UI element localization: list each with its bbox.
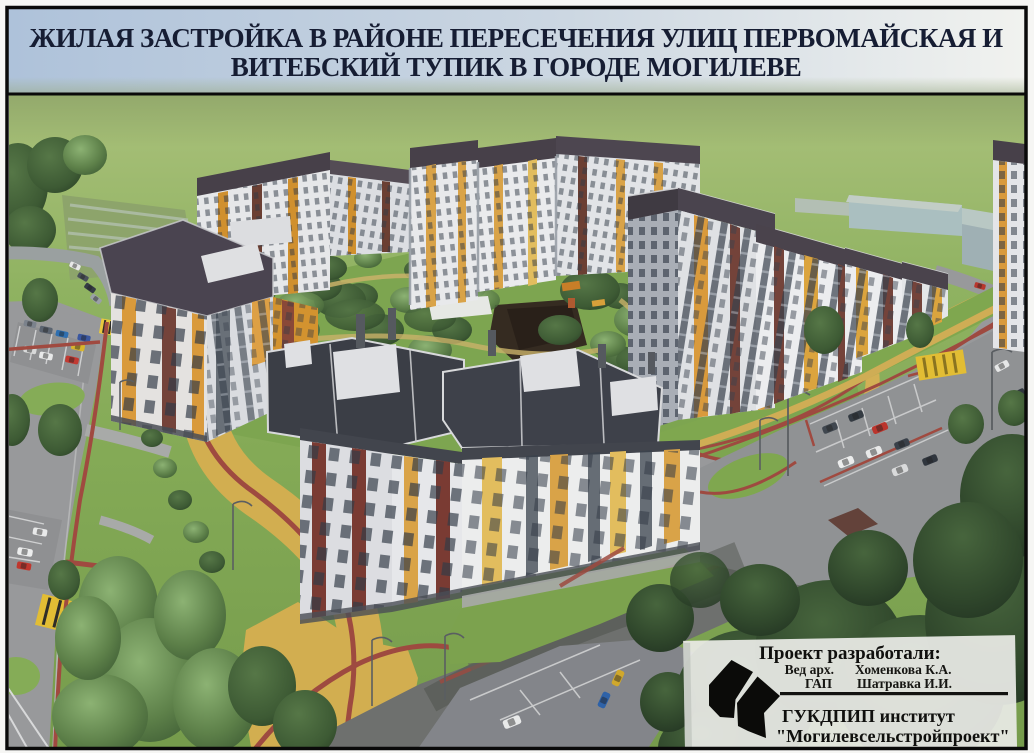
svg-text:ГУКДПИП институт: ГУКДПИП институт xyxy=(782,706,955,726)
svg-text:Проект разработали:: Проект разработали: xyxy=(759,643,941,664)
svg-text:ВИТЕБСКИЙ ТУПИК В ГОРОДЕ МОГИЛ: ВИТЕБСКИЙ ТУПИК В ГОРОДЕ МОГИЛЕВЕ xyxy=(231,52,802,82)
svg-text:Хоменкова К.А.: Хоменкова К.А. xyxy=(855,662,952,677)
svg-text:ГАП: ГАП xyxy=(805,676,833,691)
svg-text:"Могилевсельстройпроект": "Могилевсельстройпроект" xyxy=(776,726,1010,746)
svg-text:Шатравка И.И.: Шатравка И.И. xyxy=(857,676,952,691)
svg-text:Вед арх.: Вед арх. xyxy=(785,662,834,677)
svg-text:ЖИЛАЯ ЗАСТРОЙКА В РАЙОНЕ ПЕРЕС: ЖИЛАЯ ЗАСТРОЙКА В РАЙОНЕ ПЕРЕСЕЧЕНИЯ УЛИ… xyxy=(29,23,1003,53)
